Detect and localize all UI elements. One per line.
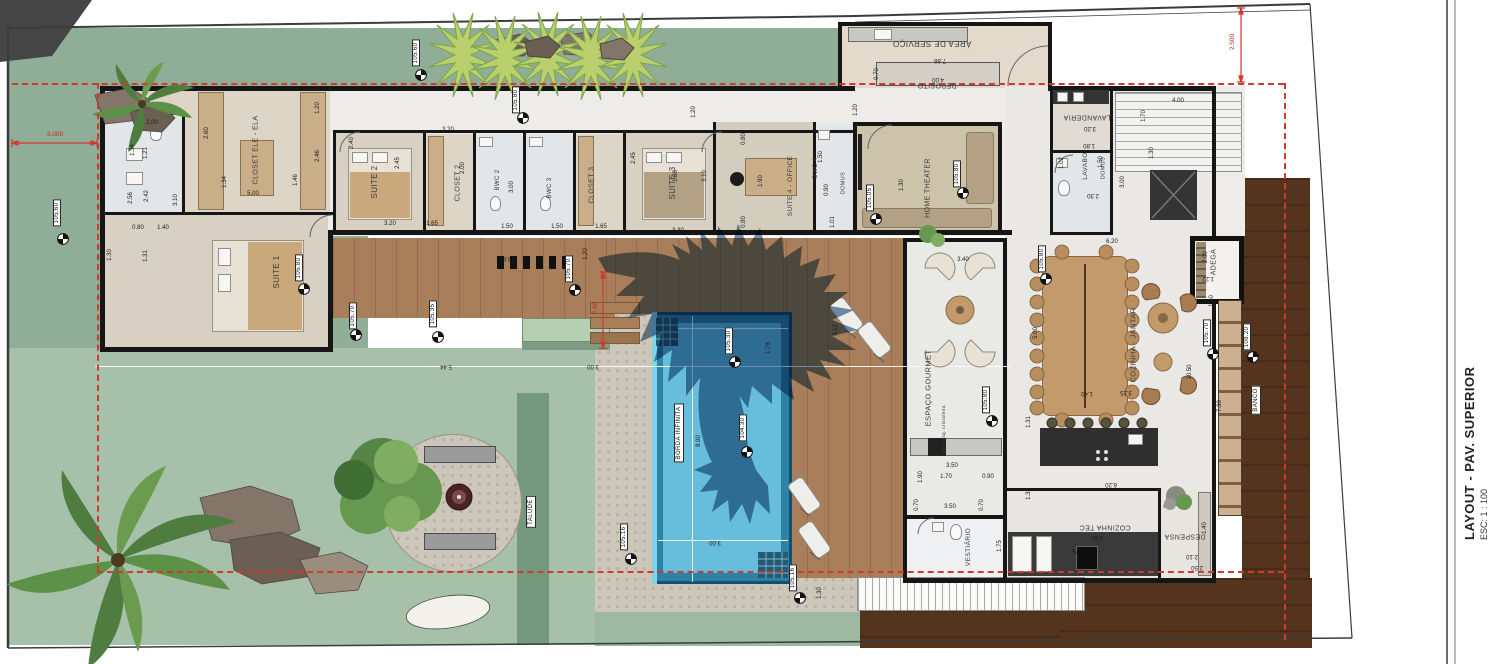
elevation-marker-icon	[741, 445, 753, 463]
dimension-label: 2.10	[1186, 553, 1198, 559]
dimension-label: 2.50	[1191, 564, 1203, 570]
dimension-label: 3.20	[442, 127, 454, 133]
dimension-label: 1.40	[1081, 390, 1093, 396]
dimension-label: 0.70	[914, 499, 920, 511]
room-label: ÁREA DE SERVIÇO	[893, 39, 972, 47]
dimension-label: 1.70	[1141, 110, 1147, 122]
red-dimension-label: 3.000	[47, 132, 63, 139]
room-label: DESPENSA	[1164, 533, 1205, 540]
dimension-label: 3.50	[944, 504, 956, 510]
dimension-label: 0.90	[982, 474, 994, 480]
dimension-label: 4.00	[932, 76, 944, 82]
elevation-label: 105.30	[725, 328, 733, 355]
elevation-label: 104.30	[739, 415, 747, 442]
dimension-label: 7.88	[934, 57, 946, 63]
dimension-label: 1.20	[853, 104, 859, 116]
dimension-label: 1.40	[1202, 522, 1208, 534]
dimension-label: 1.90	[918, 471, 924, 483]
dimension-label: 3.20	[1084, 125, 1096, 131]
room-label: HOME THEATER	[925, 158, 932, 218]
elevation-label: 105.60	[53, 200, 61, 227]
title-block: LAYOUT - PAV. SUPERIOR ESC: 1 : 100	[1462, 366, 1489, 540]
elevation-marker-icon	[794, 591, 806, 609]
dimension-label: 2.30	[1087, 192, 1099, 198]
dimension-label: 1.21	[143, 147, 149, 159]
dimension-label: 3.40	[957, 257, 969, 263]
room-label: DEPOSITO	[917, 82, 956, 89]
elevation-marker-icon	[350, 328, 362, 346]
dimension-label: 3.25	[1120, 389, 1132, 395]
room-label: SUITE 4 - OFFICE	[788, 156, 795, 217]
dimension-label: 1.30	[899, 179, 905, 191]
dimension-label: 1.02	[1059, 157, 1065, 169]
dimension-label: 8.90	[696, 435, 702, 447]
dimension-label: 1.01	[830, 216, 836, 228]
red-dimension-label: 2.66	[593, 302, 600, 315]
elevation-label: 105.80	[295, 255, 303, 282]
dimension-label: 7.98	[1217, 400, 1223, 412]
dimension-label: 6.20	[1106, 239, 1118, 245]
dimension-label: 1.30	[107, 249, 113, 261]
elevation-marker-icon	[1207, 347, 1219, 365]
dimension-label: 1.34	[222, 176, 228, 188]
dimension-label: 1.65	[595, 224, 607, 230]
room-label: BWC 3	[547, 177, 553, 198]
drawing-scale: ESC: 1 : 100	[1479, 366, 1489, 540]
dimension-label: 1.50	[501, 224, 513, 230]
dimension-label: 0.90	[824, 184, 830, 196]
elevation-marker-icon	[957, 186, 969, 204]
dimension-label: 3.10	[702, 170, 708, 182]
dimension-label: 0.70	[874, 68, 880, 80]
dimension-label: 2.42	[144, 190, 150, 202]
dimension-label: 1.30	[1149, 147, 1155, 159]
dimension-label: 12.84	[499, 255, 514, 261]
elevation-label: 105.80	[953, 161, 961, 188]
dimension-label: 1.35	[1026, 488, 1032, 500]
elevation-label: 105.80	[982, 387, 990, 414]
dimension-label: 2.60	[204, 127, 210, 139]
dimension-label: 2.00	[1203, 251, 1209, 263]
dimension-label: 3.12	[833, 324, 839, 336]
elevation-label: 105.70	[1203, 320, 1211, 347]
site-label: BANCO	[1251, 385, 1261, 414]
dimension-label: 3.00	[709, 539, 721, 545]
dimension-label: 5.00	[1033, 327, 1039, 339]
dimension-label: 2.00	[146, 120, 158, 126]
dimension-label: 1.20	[691, 106, 697, 118]
dimension-label: 0.80	[741, 216, 747, 228]
elevation-marker-icon	[1247, 350, 1259, 368]
site-label: TALUDE	[526, 496, 536, 528]
dimension-label: 1.34	[130, 144, 136, 156]
elevation-label: 105.80	[1038, 246, 1046, 273]
elevation-label: 105.16	[789, 565, 797, 592]
dimension-label: 1.78	[766, 342, 772, 354]
elevation-marker-icon	[298, 282, 310, 300]
dimension-label: 5.44	[440, 363, 452, 369]
dimension-label: 3.10	[173, 194, 179, 206]
room-label: LAVABO	[1083, 152, 1090, 179]
elevation-label: 105.60	[412, 40, 420, 67]
dimension-label: 1.30	[817, 587, 823, 599]
dimension-label: 1.31	[1026, 416, 1032, 428]
dimension-label: 1.75	[997, 540, 1003, 552]
dimension-label: 1.46	[293, 174, 299, 186]
dimension-label: 1.90	[758, 175, 764, 187]
dimension-label: 2.46	[315, 150, 321, 162]
room-label: ADEGA	[1211, 249, 1218, 276]
room-label: SUITE 1	[273, 255, 281, 288]
elevation-marker-icon	[517, 111, 529, 129]
dimension-label: 1.20	[583, 248, 589, 260]
dimension-label: 1.60	[1209, 295, 1215, 307]
dimension-label: 1.50	[818, 151, 824, 163]
dimension-label: 1.50	[1098, 156, 1104, 168]
elevation-marker-icon	[415, 68, 427, 86]
drawing-title: LAYOUT - PAV. SUPERIOR	[1462, 366, 1477, 540]
dimension-label: 5.00	[247, 191, 259, 197]
room-label: COZINHA TEC	[1079, 524, 1130, 531]
dimension-label: 6.20	[1105, 481, 1117, 487]
room-label: LAVANDERIA	[1063, 114, 1110, 121]
elevation-label: 105.05	[866, 185, 874, 212]
elevation-marker-icon	[729, 355, 741, 373]
elevation-label: 105.70	[349, 303, 357, 330]
dimension-label: 1.88	[673, 170, 679, 182]
dimension-label: 3.00	[509, 181, 515, 193]
elevation-label: 105.70	[565, 256, 573, 283]
dimension-label: 3.00	[1120, 176, 1126, 188]
dimension-label: 1.65	[426, 221, 438, 227]
room-label: CLOSET 3	[589, 167, 596, 204]
dimension-label: 1.22	[1202, 275, 1214, 281]
room-label: CLOSET ELE - ELA	[253, 116, 260, 185]
dimension-label: 4.50	[1091, 534, 1103, 540]
site-label: churrasq. cristaleira	[942, 405, 947, 453]
elevation-label: 105.35	[429, 301, 437, 328]
site-label: BORDA INFINITA	[674, 404, 684, 463]
dimension-label: 0.70	[979, 499, 985, 511]
dimension-label: 1.70	[940, 474, 952, 480]
dimension-label: 2.45	[631, 152, 637, 164]
room-label: DOMUS	[841, 172, 847, 194]
room-label: BWC 2	[495, 169, 501, 190]
elevation-marker-icon	[432, 330, 444, 348]
room-label: COZINHA - JANTAR	[1129, 307, 1137, 382]
dimension-label: 2.56	[128, 192, 134, 204]
elevation-marker-icon	[1040, 272, 1052, 290]
elevation-label: 105.16	[620, 524, 628, 551]
dimension-label: 1.40	[157, 225, 169, 231]
elevation-label: 105.80	[512, 87, 520, 114]
dimension-label: 1.31	[143, 250, 149, 262]
dimension-label: 1.20	[315, 102, 321, 114]
red-dimension-label: 2.500	[1230, 34, 1237, 50]
dimension-label: 3.30	[672, 228, 684, 234]
dimension-label: 1.50	[551, 224, 563, 230]
dimension-label: 4.00	[1172, 98, 1184, 104]
room-label: VESTIÁRIO	[966, 528, 973, 566]
elevation-marker-icon	[569, 283, 581, 301]
elevation-marker-icon	[57, 232, 69, 250]
dimension-label: 2.40	[349, 137, 355, 149]
dimension-label: 3.20	[384, 221, 396, 227]
dimension-label: 2.00	[460, 162, 466, 174]
elevation-marker-icon	[625, 552, 637, 570]
dimension-label: 3.50	[946, 463, 958, 469]
dimension-label: 1.80	[1083, 142, 1095, 148]
elevation-marker-icon	[870, 212, 882, 230]
dimension-label: 0.80	[741, 133, 747, 145]
labels-layer: CLOSET ELE - ELASUITE 1SUITE 2CLOSET 2BW…	[0, 0, 1500, 664]
elevation-label: 108.20	[1243, 324, 1251, 351]
dimension-label: 10.50	[1187, 364, 1193, 379]
room-label: ESPAÇO GOURMET	[924, 350, 932, 427]
floor-plan-canvas: CLOSET ELE - ELASUITE 1SUITE 2CLOSET 2BW…	[0, 0, 1500, 664]
dimension-label: 2.45	[395, 157, 401, 169]
dimension-label: 3.00	[587, 363, 599, 369]
dimension-label: 0.80	[132, 225, 144, 231]
dimension-label: 2.76	[1072, 547, 1084, 553]
room-label: SUITE 2	[371, 165, 379, 198]
elevation-marker-icon	[986, 414, 998, 432]
